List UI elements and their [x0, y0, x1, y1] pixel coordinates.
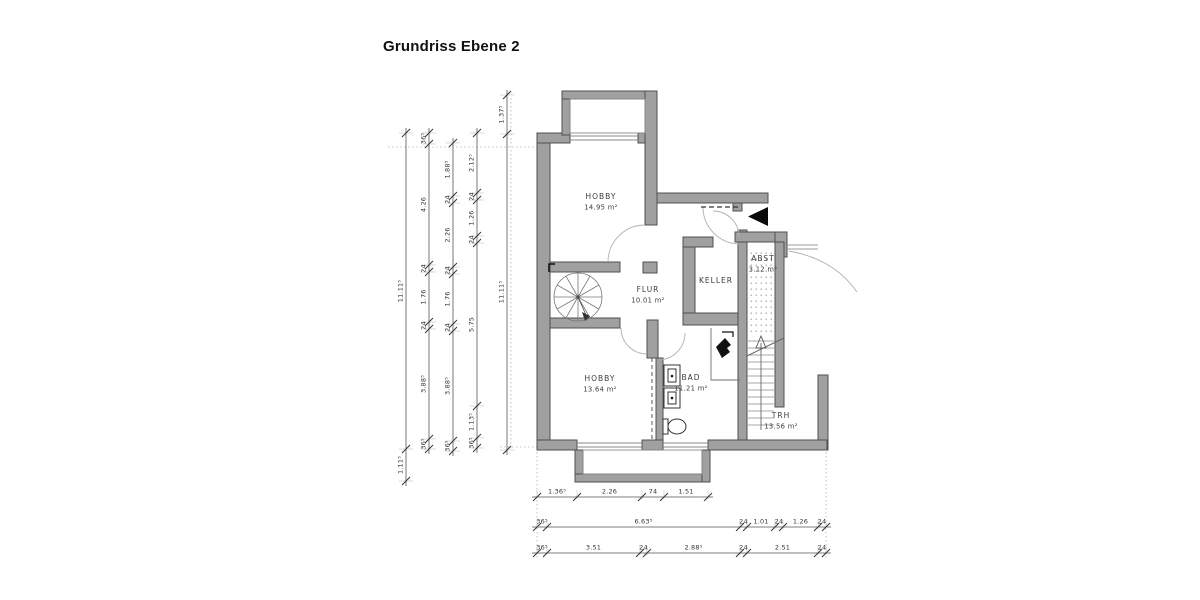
dim-label: 24 [818, 518, 827, 526]
dim-label: 1.36⁵ [548, 488, 566, 496]
entrance-arrow-icon [748, 207, 768, 226]
dim-label: 24 [420, 264, 428, 273]
dim-label: 24 [775, 518, 784, 526]
dim-label: 4.26 [420, 197, 428, 212]
dim-label: 24 [444, 323, 452, 332]
wall [818, 375, 828, 450]
room-label: BAD [681, 373, 700, 382]
bathroom-fixtures [663, 332, 733, 434]
dim-label: 1.76 [420, 289, 428, 304]
dim-label: 74 [649, 488, 658, 496]
dim-label: 24 [468, 192, 476, 201]
room-label: ABST [751, 254, 775, 263]
dim-label: 24 [444, 195, 452, 204]
dim-label: 24 [468, 235, 476, 244]
shower-fitting-icon [716, 332, 733, 358]
wall [656, 358, 663, 440]
wall [708, 440, 827, 450]
dim-label: 1.13⁵ [468, 413, 476, 431]
floorplan-drawing: HOBBY14.95 m²FLUR10.01 m²KELLERABST3.12 … [0, 0, 1200, 600]
room-area-label: 11.21 m² [674, 385, 707, 393]
dim-label: 2.88⁵ [684, 544, 702, 552]
room-label: HOBBY [585, 192, 616, 201]
dim-label: 36⁵ [468, 437, 476, 449]
dim-label: 36⁵ [444, 440, 452, 452]
dim-chain: 36⁵6.63⁵241.01241.2624 [532, 518, 831, 532]
dim-label: 36⁵ [536, 518, 548, 526]
wall [657, 193, 768, 203]
wall [642, 440, 663, 450]
sink-icon [664, 365, 680, 386]
dim-label: 2.12⁵ [468, 154, 476, 172]
bay-window-bottom-inner [583, 450, 702, 474]
door-arc-abst-exterior [789, 251, 857, 292]
dim-label: 1.11⁵ [397, 456, 405, 474]
room-area-label: 13.56 m² [764, 423, 797, 431]
wall [702, 450, 710, 482]
wall [683, 237, 695, 325]
spiral-staircase-icon [554, 273, 602, 321]
room-area-label: 3.12 m² [749, 266, 778, 274]
dim-label: 6.63⁵ [634, 518, 652, 526]
room-area-label: 14.95 m² [584, 204, 617, 212]
dim-label: 3.88⁵ [420, 375, 428, 393]
dim-label: 24 [818, 544, 827, 552]
door-arc-hobby-top [608, 225, 645, 262]
wall [575, 474, 710, 482]
room-label: FLUR [637, 285, 660, 294]
wall [683, 313, 740, 325]
dim-chain: 11.11⁵1.11⁵ [397, 128, 414, 486]
dim-chain: 2.12⁵241.26245.751.13⁵36⁵ [468, 128, 485, 453]
dim-chain: 1.37⁵11.11⁵ [498, 90, 515, 455]
dim-label: 11.11⁵ [498, 281, 506, 304]
dim-label: 36⁵ [420, 133, 428, 145]
dim-label: 24 [420, 321, 428, 330]
door-arc-bad [658, 333, 685, 360]
dim-chain: 36⁵3.51242.88⁵242.5124 [532, 544, 831, 558]
dim-label: 24 [739, 544, 748, 552]
dim-label: 3.88⁵ [444, 377, 452, 395]
dim-label: 1.26 [793, 518, 808, 526]
bay-window-top-inner [570, 99, 645, 133]
wall [647, 320, 658, 358]
dim-label: 1.51 [678, 488, 693, 496]
dim-label: 1.37⁵ [498, 105, 506, 123]
wall [537, 440, 577, 450]
dim-label: 24 [444, 266, 452, 275]
toilet-icon [663, 419, 686, 434]
dim-label: 1.76 [444, 291, 452, 306]
room-label: HOBBY [584, 374, 615, 383]
wall [645, 91, 657, 225]
room-area-label: 13.64 m² [583, 386, 616, 394]
wall [643, 262, 657, 273]
room-area-label: 10.01 m² [631, 297, 664, 305]
dim-chain: 1.36⁵2.26741.51 [532, 488, 713, 502]
dim-label: 36⁵ [536, 544, 548, 552]
dim-label: 3.51 [586, 544, 601, 552]
dim-label: 36⁵ [420, 438, 428, 450]
dim-label: 5.75 [468, 317, 476, 332]
dim-label: 24 [639, 544, 648, 552]
wall [562, 91, 657, 99]
wall [683, 237, 713, 247]
dim-label: 2.26 [602, 488, 617, 496]
dim-label: 24 [739, 518, 748, 526]
dim-label: 1.01 [753, 518, 768, 526]
wall [738, 230, 747, 450]
dim-label: 2.26 [444, 227, 452, 242]
dim-chain: 1.88⁵242.26241.76243.88⁵36⁵ [444, 138, 461, 456]
floorplan-page: Grundriss Ebene 2 [0, 0, 1200, 600]
door-arc-hobby-bottom [621, 328, 647, 354]
dim-label: 2.51 [775, 544, 790, 552]
room-label: KELLER [699, 276, 733, 285]
room-label: TRH [771, 411, 790, 420]
dim-chain: 36⁵4.26241.76243.88⁵36⁵ [420, 128, 437, 454]
dim-label: 1.26 [468, 210, 476, 225]
wall [537, 133, 550, 449]
dim-label: 11.11⁵ [397, 280, 405, 303]
dim-label: 1.88⁵ [444, 160, 452, 178]
wall [550, 262, 620, 272]
